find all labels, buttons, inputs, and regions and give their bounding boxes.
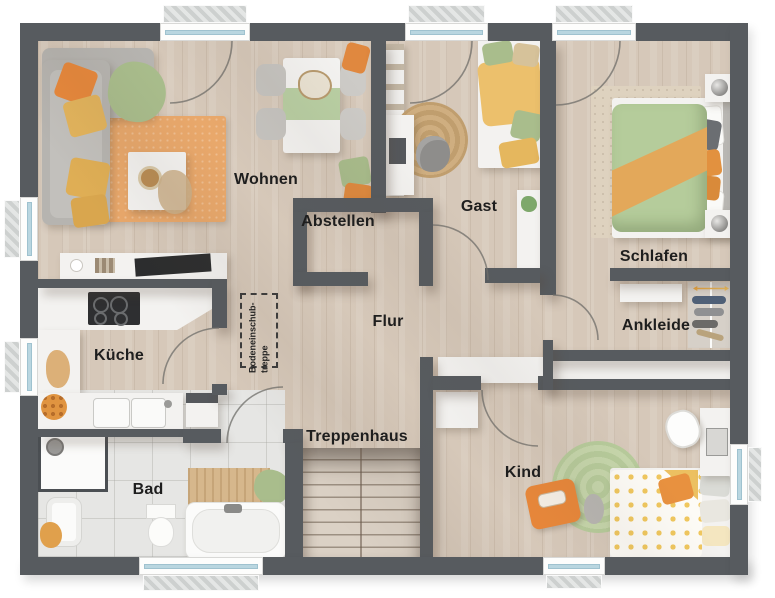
wardrobe-band-ankleide [553, 361, 730, 379]
exterior-wall-top [20, 23, 748, 41]
wall-ankleide-bottom-lower [543, 379, 730, 390]
bathtub-inner [192, 509, 280, 553]
wall-kueche-flur [212, 279, 227, 328]
room-label-gast: Gast [461, 198, 497, 216]
lamp-2 [711, 215, 728, 232]
wall-abstellen-top [293, 198, 433, 212]
dining-chair [256, 64, 286, 96]
dried-plant [158, 170, 192, 214]
window-top-wohnen [160, 23, 250, 41]
room-label-schlafen: Schlafen [620, 248, 688, 266]
exterior-wall-left [20, 23, 38, 575]
room-label-bad: Bad [133, 481, 164, 499]
wall-kueche-bad [38, 429, 183, 437]
wall-bad-door-left [183, 429, 221, 443]
shutter-box [748, 447, 762, 502]
wall-kueche-stub [212, 384, 227, 395]
office-chair [416, 136, 450, 172]
exterior-wall-bottom [20, 557, 748, 575]
plush-toy [584, 494, 604, 524]
decor-vase [70, 259, 83, 272]
shutter-box [546, 575, 602, 589]
wall-abstellen-bottom [293, 272, 368, 286]
wall-wohnen-kueche [38, 279, 212, 288]
pillow-grey-kind [699, 473, 731, 498]
window-left-wohnen [20, 197, 38, 261]
shoes-grey [694, 308, 724, 316]
window-left-kueche [20, 338, 38, 396]
shoes-navy [692, 296, 726, 304]
table-flowers [298, 70, 332, 100]
faucet [164, 400, 172, 408]
wall-abstellen-right [419, 212, 433, 286]
attic-hatch-label: Bodeneinschub-treppe [247, 289, 270, 373]
window-bottom-kind [543, 557, 605, 575]
laptop-kind [706, 428, 728, 456]
window-top-gast [405, 23, 488, 41]
pillow-mustard-2 [70, 194, 110, 229]
floor-plan: Bodeneinschub-treppe [0, 0, 775, 598]
room-label-treppenhaus: Treppenhaus [306, 428, 408, 446]
wall-schlafen-ankleide [610, 268, 730, 281]
shutter-box [4, 341, 20, 393]
pillow-cream-kind [699, 499, 731, 524]
room-label-kind: Kind [505, 464, 541, 482]
wall-treppenhaus-left [285, 443, 303, 557]
window-right-kind [730, 444, 748, 505]
wall-ankleide-left-stub [543, 340, 553, 390]
wall-wohnen-gast [371, 41, 386, 213]
room-label-kueche: Küche [94, 347, 144, 365]
wall-bad-door-right [283, 429, 303, 443]
wall-kind-top-a [433, 376, 481, 390]
wall-ankleide-bottom-upper [543, 350, 730, 361]
plant-gast [521, 196, 537, 212]
fruit-bowl [41, 394, 67, 420]
dining-chair [340, 108, 366, 140]
attic-hatch-box: Bodeneinschub-treppe [240, 293, 278, 368]
sink-basin-2 [131, 398, 166, 428]
wall-gast-schlafen [540, 41, 556, 295]
shower-head [46, 438, 64, 456]
decor-books [95, 258, 115, 273]
wall-treppenhaus-right [420, 357, 433, 557]
dresser-ankleide [620, 284, 682, 302]
shoes-dark [692, 320, 718, 328]
shutter-box [408, 5, 485, 23]
pillow-tan-gast [512, 42, 541, 67]
kitchen-flowers [46, 350, 70, 388]
lamp-1 [711, 79, 728, 96]
shutter-box [143, 575, 259, 591]
room-label-flur: Flur [372, 313, 403, 331]
shutter-box [4, 200, 20, 258]
cooktop [88, 292, 140, 325]
shutter-box [555, 5, 633, 23]
wall-gast-flur [485, 268, 540, 283]
staircase [303, 448, 420, 557]
laptop-gast [389, 138, 406, 164]
toilet-bowl [148, 517, 174, 547]
room-label-wohnen: Wohnen [234, 171, 298, 189]
tub-faucet [224, 504, 242, 513]
window-bottom-bad [139, 557, 263, 575]
dining-chair [256, 108, 286, 140]
room-label-abstellen: Abstellen [301, 213, 375, 231]
closet-kind [436, 392, 478, 428]
pillow-polka-kind [702, 526, 730, 546]
shutter-box [163, 5, 247, 23]
window-top-schlafen [552, 23, 636, 41]
room-label-ankleide: Ankleide [622, 317, 690, 335]
towel-orange [40, 522, 62, 548]
sink-basin-1 [93, 398, 130, 428]
